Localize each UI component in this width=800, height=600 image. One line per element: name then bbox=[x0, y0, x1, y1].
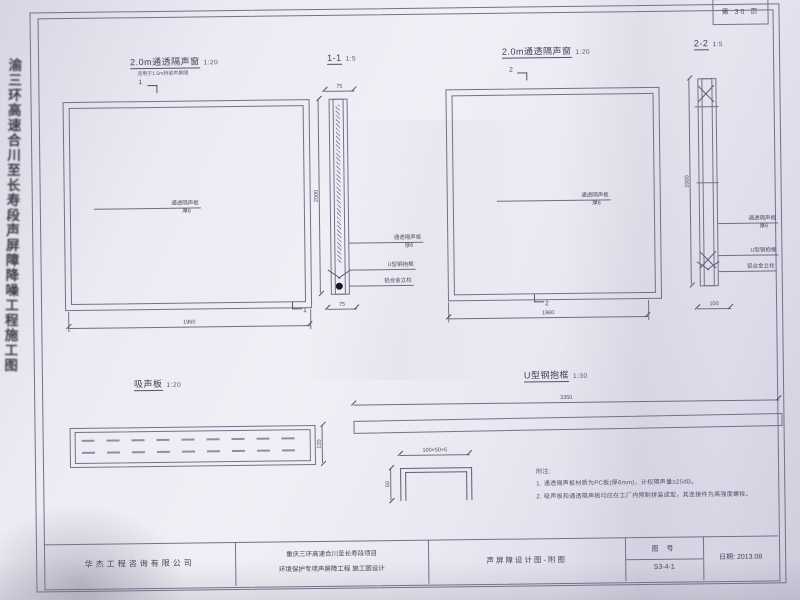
scanned-drawing-sheet: { "meta": { "page_label": "第 30 页", "bin… bbox=[0, 0, 800, 600]
section-mark-1-bottom: 1 bbox=[303, 307, 307, 314]
figure-number: S3-4-1 bbox=[625, 563, 703, 571]
section-2-2-label-panel: 通透隔声板 厚6 bbox=[718, 213, 778, 224]
section-1-1-label-panel: 通透隔声板 厚6 bbox=[349, 233, 423, 244]
section-1-1-label-post: 铝合金立柱 bbox=[350, 276, 414, 287]
section-2-2-label-post: 铝合金立柱 bbox=[719, 261, 777, 272]
section-mark-2-top-line bbox=[517, 72, 527, 80]
figure-number-label: 图 号 bbox=[625, 543, 703, 554]
absorber-title: 吸声板1:20 bbox=[134, 377, 181, 391]
u-frame-title: U型钢抱框1:30 bbox=[524, 368, 588, 382]
right-window-panel-label: 通透隔声板 厚6 bbox=[497, 190, 611, 201]
section-1-1-bracket bbox=[329, 267, 351, 281]
page-number: 第 30 页 bbox=[722, 7, 760, 17]
left-window-panel-label: 通透隔声板 厚6 bbox=[94, 198, 201, 209]
u-channel-outline-inner bbox=[405, 471, 467, 501]
left-window-title: 2.0m通透隔声窗1:20 bbox=[130, 54, 218, 68]
section-1-1-label-uframe: U型钢抱框 bbox=[350, 260, 416, 271]
left-window-subtitle: 适用于1.5m桥梁声屏障 bbox=[137, 70, 188, 78]
drawing-date: 日期: 2013.08 bbox=[703, 551, 778, 562]
right-window-title: 2.0m通透隔声窗1:20 bbox=[502, 44, 590, 58]
section-2-2-title: 2-21:5 bbox=[694, 38, 723, 48]
section-2-2-bracket bbox=[698, 258, 719, 272]
notes-heading: 附注: bbox=[536, 466, 551, 475]
section-mark-1-top: 1 bbox=[138, 79, 142, 86]
drawing-content: 第 30 页 2.0m通透隔声窗1:20 适用于1.5m桥梁声屏障 1 1 通透… bbox=[0, 0, 800, 600]
section-mark-2-top: 2 bbox=[509, 67, 513, 74]
section-mark-1-top-line bbox=[147, 85, 157, 93]
section-2-2-top-brace bbox=[695, 81, 716, 105]
section-2-2-label-uframe: U型钢抱框 bbox=[718, 245, 778, 256]
absorber-frame-inner bbox=[75, 429, 311, 464]
section-mark-2-bottom: 2 bbox=[545, 300, 549, 307]
section-1-1-bolt bbox=[336, 283, 343, 290]
section-1-1-title: 1-11:5 bbox=[327, 53, 356, 63]
page-number-box: 第 30 页 bbox=[712, 0, 768, 25]
company-name: 华杰工程咨询有限公司 bbox=[44, 557, 235, 570]
